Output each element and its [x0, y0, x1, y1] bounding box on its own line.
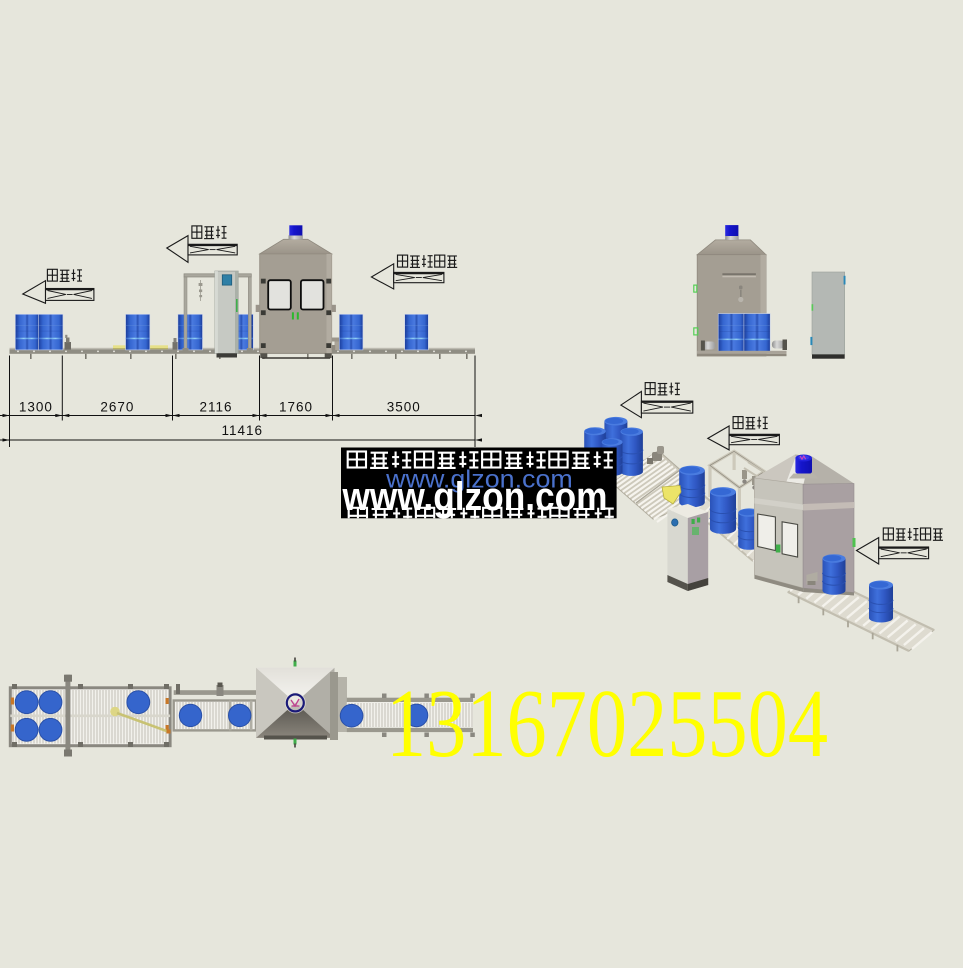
svg-text:2670: 2670 [100, 400, 134, 415]
svg-text:3500: 3500 [387, 400, 421, 415]
svg-text:2116: 2116 [199, 400, 232, 415]
svg-text:11416: 11416 [222, 423, 264, 438]
svg-text:13167025504: 13167025504 [386, 670, 828, 777]
svg-text:1760: 1760 [279, 400, 313, 415]
svg-text:1300: 1300 [19, 400, 53, 415]
